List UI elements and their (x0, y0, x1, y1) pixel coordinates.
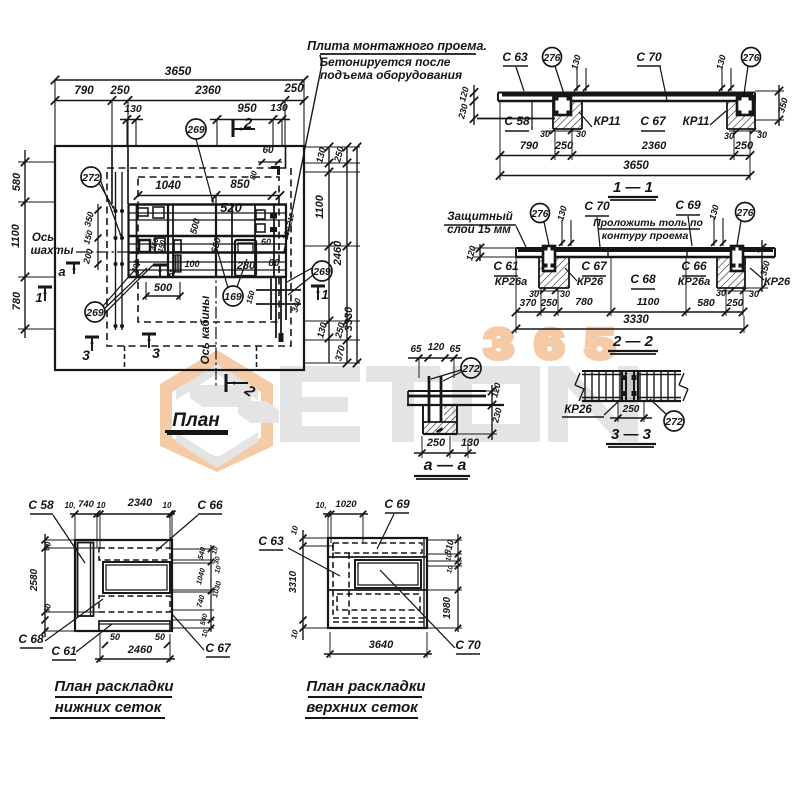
svg-text:130: 130 (461, 437, 480, 449)
svg-text:С 70: С 70 (584, 199, 610, 213)
svg-text:30: 30 (724, 131, 734, 141)
svg-text:2340: 2340 (127, 497, 153, 509)
svg-text:50: 50 (110, 632, 120, 642)
svg-text:С 69: С 69 (384, 497, 410, 511)
svg-text:30: 30 (560, 289, 570, 299)
svg-text:250: 250 (540, 298, 558, 309)
svg-text:План раскладки: План раскладки (306, 678, 425, 695)
svg-text:30: 30 (757, 130, 767, 140)
svg-text:шахты: шахты (30, 245, 73, 257)
svg-text:790: 790 (74, 85, 94, 97)
svg-text:2460: 2460 (332, 240, 344, 266)
svg-text:250: 250 (554, 140, 574, 152)
svg-text:2580: 2580 (29, 568, 40, 592)
svg-text:1 — 1: 1 — 1 (613, 179, 653, 196)
svg-text:подъема оборудования: подъема оборудования (320, 68, 462, 82)
svg-text:269: 269 (85, 307, 104, 319)
svg-text:100: 100 (184, 259, 199, 269)
svg-text:950: 950 (237, 103, 257, 115)
svg-text:120: 120 (428, 342, 445, 353)
svg-text:Проложить толь по: Проложить толь по (593, 217, 703, 229)
svg-text:580: 580 (697, 297, 715, 309)
svg-text:1100: 1100 (637, 296, 660, 308)
svg-text:КР26: КР26 (564, 404, 592, 416)
svg-text:250: 250 (622, 404, 640, 415)
svg-text:1980: 1980 (442, 596, 453, 619)
svg-text:1100: 1100 (314, 194, 326, 219)
svg-text:10: 10 (97, 501, 106, 510)
svg-text:слой 15 мм: слой 15 мм (447, 224, 511, 236)
svg-text:80: 80 (268, 258, 280, 269)
svg-text:С 58: С 58 (28, 498, 54, 512)
svg-text:КР26: КР26 (764, 276, 791, 288)
svg-text:План раскладки: План раскладки (54, 678, 173, 695)
svg-text:Ось: Ось (32, 232, 54, 244)
svg-text:3330: 3330 (343, 306, 355, 331)
svg-text:276: 276 (742, 53, 760, 64)
svg-text:250: 250 (734, 140, 754, 152)
svg-text:2 — 2: 2 — 2 (612, 333, 654, 350)
svg-text:С 68: С 68 (18, 632, 44, 646)
svg-text:30: 30 (576, 129, 586, 139)
svg-text:контуру проема: контуру проема (602, 230, 689, 242)
svg-text:2460: 2460 (127, 644, 153, 656)
svg-text:2: 2 (243, 115, 253, 132)
svg-text:1100: 1100 (10, 223, 22, 248)
svg-text:1040: 1040 (155, 180, 181, 192)
svg-text:С 70: С 70 (636, 50, 662, 64)
svg-text:780: 780 (575, 296, 593, 308)
svg-text:а — а: а — а (424, 457, 467, 474)
svg-text:1020: 1020 (335, 499, 357, 510)
svg-text:1: 1 (35, 290, 42, 305)
svg-text:500: 500 (154, 282, 173, 294)
svg-text:2360: 2360 (194, 85, 221, 97)
svg-text:740: 740 (78, 499, 95, 510)
svg-text:С 61: С 61 (493, 259, 519, 273)
svg-text:3: 3 (82, 347, 90, 363)
svg-text:50: 50 (155, 632, 165, 642)
svg-text:С 68: С 68 (630, 272, 656, 286)
svg-text:10,: 10, (64, 501, 75, 510)
svg-text:3330: 3330 (623, 314, 649, 326)
svg-text:3650: 3650 (165, 64, 192, 78)
svg-text:КР11: КР11 (594, 116, 621, 128)
svg-text:370: 370 (520, 298, 537, 309)
svg-text:276: 276 (543, 53, 561, 64)
svg-text:С 70: С 70 (455, 638, 481, 652)
svg-text:272: 272 (81, 172, 100, 184)
svg-text:130: 130 (124, 103, 142, 115)
svg-text:780: 780 (11, 291, 23, 310)
svg-text:790: 790 (520, 140, 539, 152)
svg-text:КР26: КР26 (577, 276, 604, 288)
svg-text:269: 269 (312, 266, 331, 278)
svg-text:3310: 3310 (288, 570, 299, 593)
svg-text:С 66: С 66 (681, 259, 707, 273)
svg-text:3650: 3650 (623, 160, 649, 172)
svg-text:нижних сеток: нижних сеток (55, 699, 163, 716)
svg-text:Плита монтажного проема.: Плита монтажного проема. (307, 39, 487, 53)
svg-text:а: а (58, 264, 65, 279)
svg-text:С 67: С 67 (205, 641, 232, 655)
svg-text:276: 276 (736, 208, 754, 219)
svg-text:250: 250 (426, 437, 446, 449)
svg-text:КР26а: КР26а (495, 276, 527, 288)
svg-text:520: 520 (220, 200, 242, 215)
svg-text:С 63: С 63 (502, 50, 528, 64)
svg-text:верхних сеток: верхних сеток (306, 699, 419, 716)
svg-text:850: 850 (230, 179, 250, 191)
svg-text:Бетонируется после: Бетонируется после (320, 55, 451, 69)
svg-text:269: 269 (186, 124, 205, 136)
svg-text:65: 65 (410, 344, 422, 355)
svg-text:30: 30 (716, 288, 726, 298)
svg-text:276: 276 (531, 209, 549, 220)
svg-text:169: 169 (224, 291, 242, 303)
svg-text:С 61: С 61 (51, 644, 77, 658)
svg-text:30: 30 (540, 129, 550, 139)
svg-text:КР11: КР11 (683, 116, 710, 128)
svg-text:272: 272 (664, 416, 683, 428)
svg-text:10,: 10, (315, 501, 326, 510)
svg-text:2360: 2360 (641, 140, 667, 152)
svg-text:3: 3 (152, 345, 160, 361)
svg-text:а: а (168, 265, 175, 280)
svg-text:250: 250 (726, 298, 744, 309)
svg-text:С 58: С 58 (504, 114, 530, 128)
svg-text:60: 60 (262, 145, 274, 156)
svg-text:272: 272 (461, 363, 480, 375)
svg-text:1: 1 (321, 287, 328, 302)
svg-text:С 67: С 67 (581, 259, 608, 273)
svg-text:65: 65 (449, 344, 461, 355)
svg-text:250: 250 (109, 85, 130, 97)
svg-text:С 63: С 63 (258, 534, 284, 548)
svg-text:3 — 3: 3 — 3 (611, 426, 652, 443)
svg-text:С 66: С 66 (197, 498, 223, 512)
svg-text:580: 580 (11, 172, 23, 191)
svg-text:250: 250 (283, 83, 304, 95)
svg-text:План: План (172, 410, 220, 431)
svg-text:3640: 3640 (369, 639, 394, 651)
svg-text:30: 30 (749, 289, 759, 299)
svg-text:С 69: С 69 (675, 198, 701, 212)
svg-text:С 67: С 67 (640, 114, 667, 128)
svg-text:10: 10 (163, 501, 172, 510)
svg-text:Защитный: Защитный (447, 211, 513, 223)
svg-text:60: 60 (261, 237, 271, 247)
svg-text:130: 130 (270, 102, 288, 114)
svg-text:Ось кабины: Ось кабины (200, 296, 212, 365)
svg-text:КР26а: КР26а (678, 276, 710, 288)
